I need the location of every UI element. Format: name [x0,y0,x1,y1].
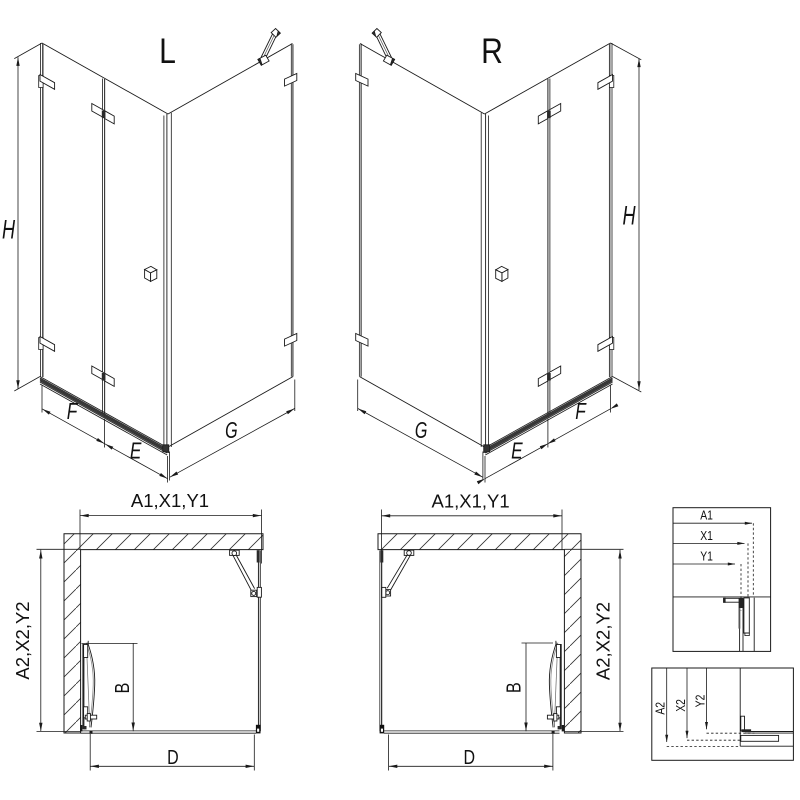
svg-text:X1: X1 [700,529,713,543]
svg-text:E: E [511,439,523,464]
svg-text:F: F [575,400,587,425]
svg-text:A2,X2,Y2: A2,X2,Y2 [12,601,33,679]
svg-text:G: G [415,418,428,443]
svg-text:A1: A1 [700,509,713,523]
svg-text:G: G [225,418,238,443]
svg-text:H: H [622,200,635,231]
svg-text:A2: A2 [654,702,668,715]
svg-text:B: B [111,683,133,694]
svg-text:B: B [503,682,525,693]
svg-text:Y1: Y1 [700,549,713,563]
svg-text:X2: X2 [674,699,688,712]
svg-text:D: D [167,746,179,768]
svg-text:D: D [464,746,476,768]
svg-text:A1,X1,Y1: A1,X1,Y1 [432,490,510,511]
svg-text:R: R [481,30,503,70]
svg-text:E: E [130,439,142,464]
svg-text:F: F [67,400,79,425]
svg-text:Y2: Y2 [693,695,707,708]
svg-text:A1,X1,Y1: A1,X1,Y1 [131,490,209,511]
svg-text:H: H [2,214,15,245]
svg-text:L: L [159,30,176,70]
svg-text:A2,X2,Y2: A2,X2,Y2 [592,602,613,680]
